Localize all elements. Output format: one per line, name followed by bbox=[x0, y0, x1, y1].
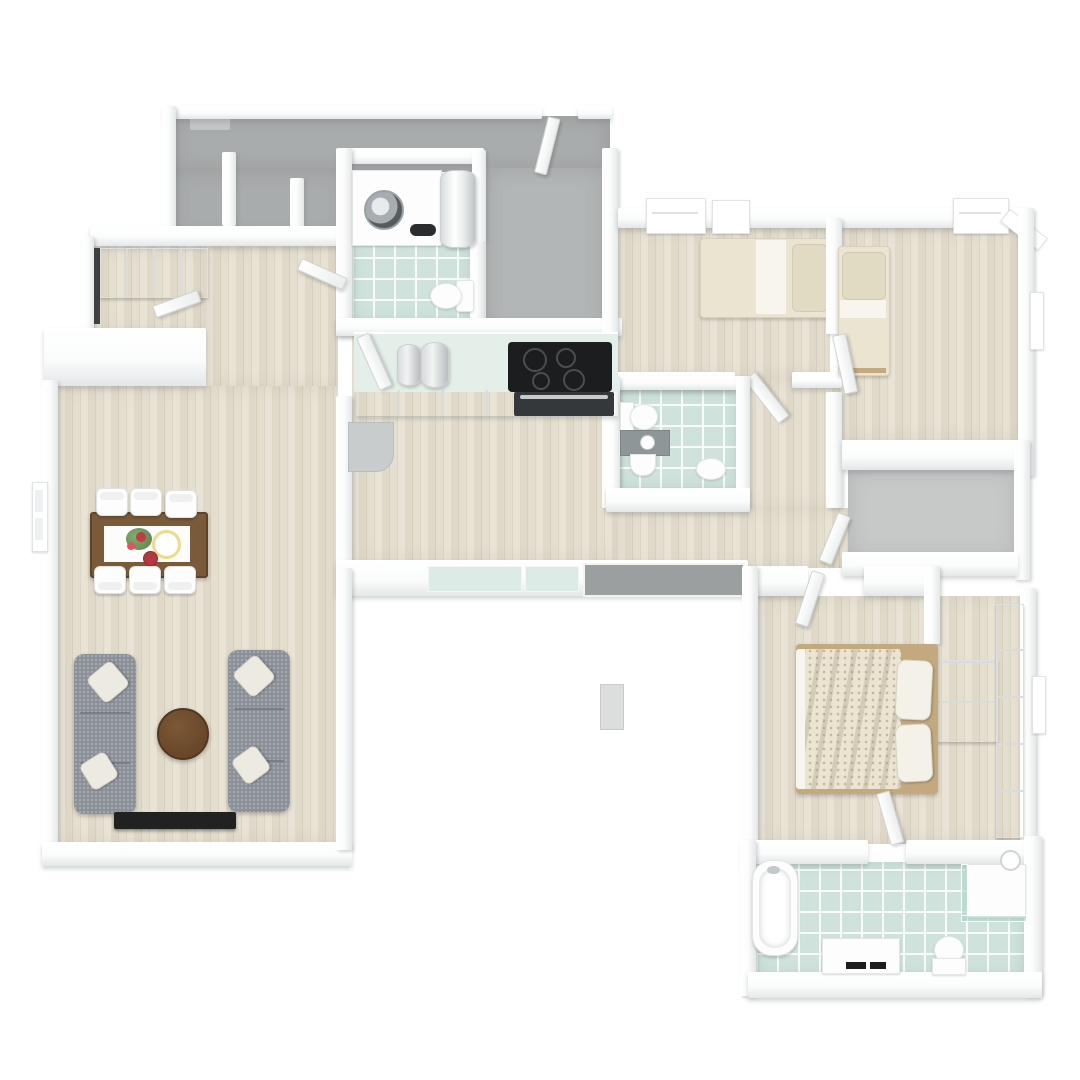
washing-machine-icon bbox=[364, 190, 404, 230]
tv-bench bbox=[114, 812, 236, 829]
oven-handle bbox=[520, 395, 608, 399]
sofa-right-seam-1 bbox=[234, 708, 284, 710]
dining-red-dish bbox=[143, 551, 158, 566]
terrace-door-recess bbox=[583, 563, 745, 597]
living-west-window-pane-1 bbox=[35, 490, 43, 512]
wall-master-west bbox=[742, 566, 758, 856]
small-bath-pedestal-sink bbox=[630, 454, 656, 476]
wall-north-right-of-entry-door bbox=[578, 106, 612, 119]
coffee-table bbox=[157, 708, 209, 760]
shower-glass-left bbox=[961, 864, 968, 922]
wall-hall-laundry-kitchen-west-upper bbox=[336, 148, 352, 336]
wall-bedroom2-south bbox=[842, 440, 1018, 470]
master-bed-sheet-fold bbox=[796, 649, 805, 789]
wall-living-south bbox=[42, 842, 352, 866]
dining-chair-5 bbox=[129, 566, 161, 594]
kitchen-canister-2 bbox=[421, 342, 449, 388]
laundry-floor bbox=[352, 238, 470, 322]
wall-living-east-lower bbox=[336, 568, 352, 850]
kitchen-side-cabinet bbox=[348, 422, 394, 472]
cooktop-burner-3 bbox=[532, 372, 550, 390]
dining-chair-2 bbox=[130, 488, 162, 516]
small-bath-washstand-sink bbox=[640, 435, 655, 450]
laundry-toilet-bowl bbox=[430, 283, 462, 309]
living-west-window-pane-2 bbox=[35, 518, 43, 540]
entry-hall-floor bbox=[486, 168, 604, 332]
wall-living-west bbox=[42, 380, 58, 852]
wall-garage-west bbox=[162, 106, 176, 242]
master-bath-toilet-tank bbox=[932, 958, 966, 975]
sofa-left-seam-1 bbox=[80, 712, 130, 714]
water-heater bbox=[440, 170, 476, 248]
bedroom1-window-2 bbox=[712, 200, 750, 234]
master-bed-pillow-2 bbox=[895, 723, 934, 783]
wall-laundry-north bbox=[338, 148, 484, 164]
exterior-chimney-block bbox=[600, 684, 624, 730]
shower-glass-bottom bbox=[961, 915, 1027, 922]
small-bath-white-fixture bbox=[696, 458, 726, 480]
bedroom2-window-1-line bbox=[959, 212, 1001, 214]
bedroom2-bed-pillow bbox=[842, 252, 886, 300]
cooktop-burner-4 bbox=[563, 369, 585, 391]
laundry-vent bbox=[410, 224, 436, 236]
bedroom1-bed-pillow bbox=[792, 244, 828, 312]
bedroom2-window-1 bbox=[953, 198, 1009, 234]
bath-vanity-slot-1 bbox=[846, 962, 866, 969]
master-bed-duvet bbox=[801, 649, 901, 789]
wall-bedroom1-south-right bbox=[792, 372, 842, 388]
bedroom2-bed-sheet bbox=[840, 300, 886, 318]
dining-flowers-red-2 bbox=[127, 542, 135, 550]
dining-chair-1 bbox=[96, 488, 128, 516]
east-window-bedroom2 bbox=[1030, 292, 1044, 350]
wall-closet-west bbox=[82, 236, 94, 336]
storage-room-floor bbox=[848, 470, 1016, 558]
kitchen-canister-1 bbox=[397, 344, 421, 386]
dining-chair-3 bbox=[165, 490, 197, 518]
dining-chair-4 bbox=[94, 566, 126, 594]
master-bed-pillow-1 bbox=[894, 659, 933, 721]
wall-small-bath-south bbox=[606, 488, 750, 512]
wall-corridor-east-upper bbox=[826, 392, 842, 508]
wall-north-left bbox=[164, 106, 542, 119]
kitchen-south-window-1 bbox=[428, 566, 522, 592]
wall-master-south-left bbox=[742, 840, 868, 864]
wall-stub-garage-1 bbox=[222, 152, 236, 226]
master-wardrobe-block bbox=[930, 660, 998, 742]
wall-closet-hall-north bbox=[90, 226, 348, 246]
wall-master-bath-south bbox=[748, 972, 1042, 998]
kitchen-south-window-2 bbox=[525, 566, 579, 592]
cooktop-burner-1 bbox=[523, 348, 547, 372]
small-bath-toilet-bowl bbox=[630, 404, 658, 430]
garage-door-mark bbox=[190, 118, 230, 130]
bath-vanity-slot-2 bbox=[870, 962, 886, 969]
east-window-master bbox=[1032, 676, 1046, 734]
cooktop-burner-2 bbox=[556, 348, 576, 368]
wall-living-north-block bbox=[44, 328, 206, 386]
dining-chair-6 bbox=[164, 566, 196, 594]
bedroom1-bed-sheet bbox=[756, 240, 786, 314]
wall-small-bath-north bbox=[606, 376, 750, 390]
wall-master-closet-divider bbox=[924, 566, 940, 644]
shower-tray bbox=[966, 864, 1026, 918]
bathtub-faucet bbox=[767, 866, 780, 874]
bathtub-basin bbox=[759, 868, 791, 948]
dining-flowers-red-1 bbox=[136, 532, 146, 542]
shower-head bbox=[1000, 850, 1021, 871]
bedroom1-window-1-line bbox=[652, 212, 698, 214]
master-wardrobe-strip bbox=[996, 604, 1024, 838]
bedroom1-window-1 bbox=[646, 198, 706, 234]
floor-plan-render bbox=[0, 0, 1080, 1080]
